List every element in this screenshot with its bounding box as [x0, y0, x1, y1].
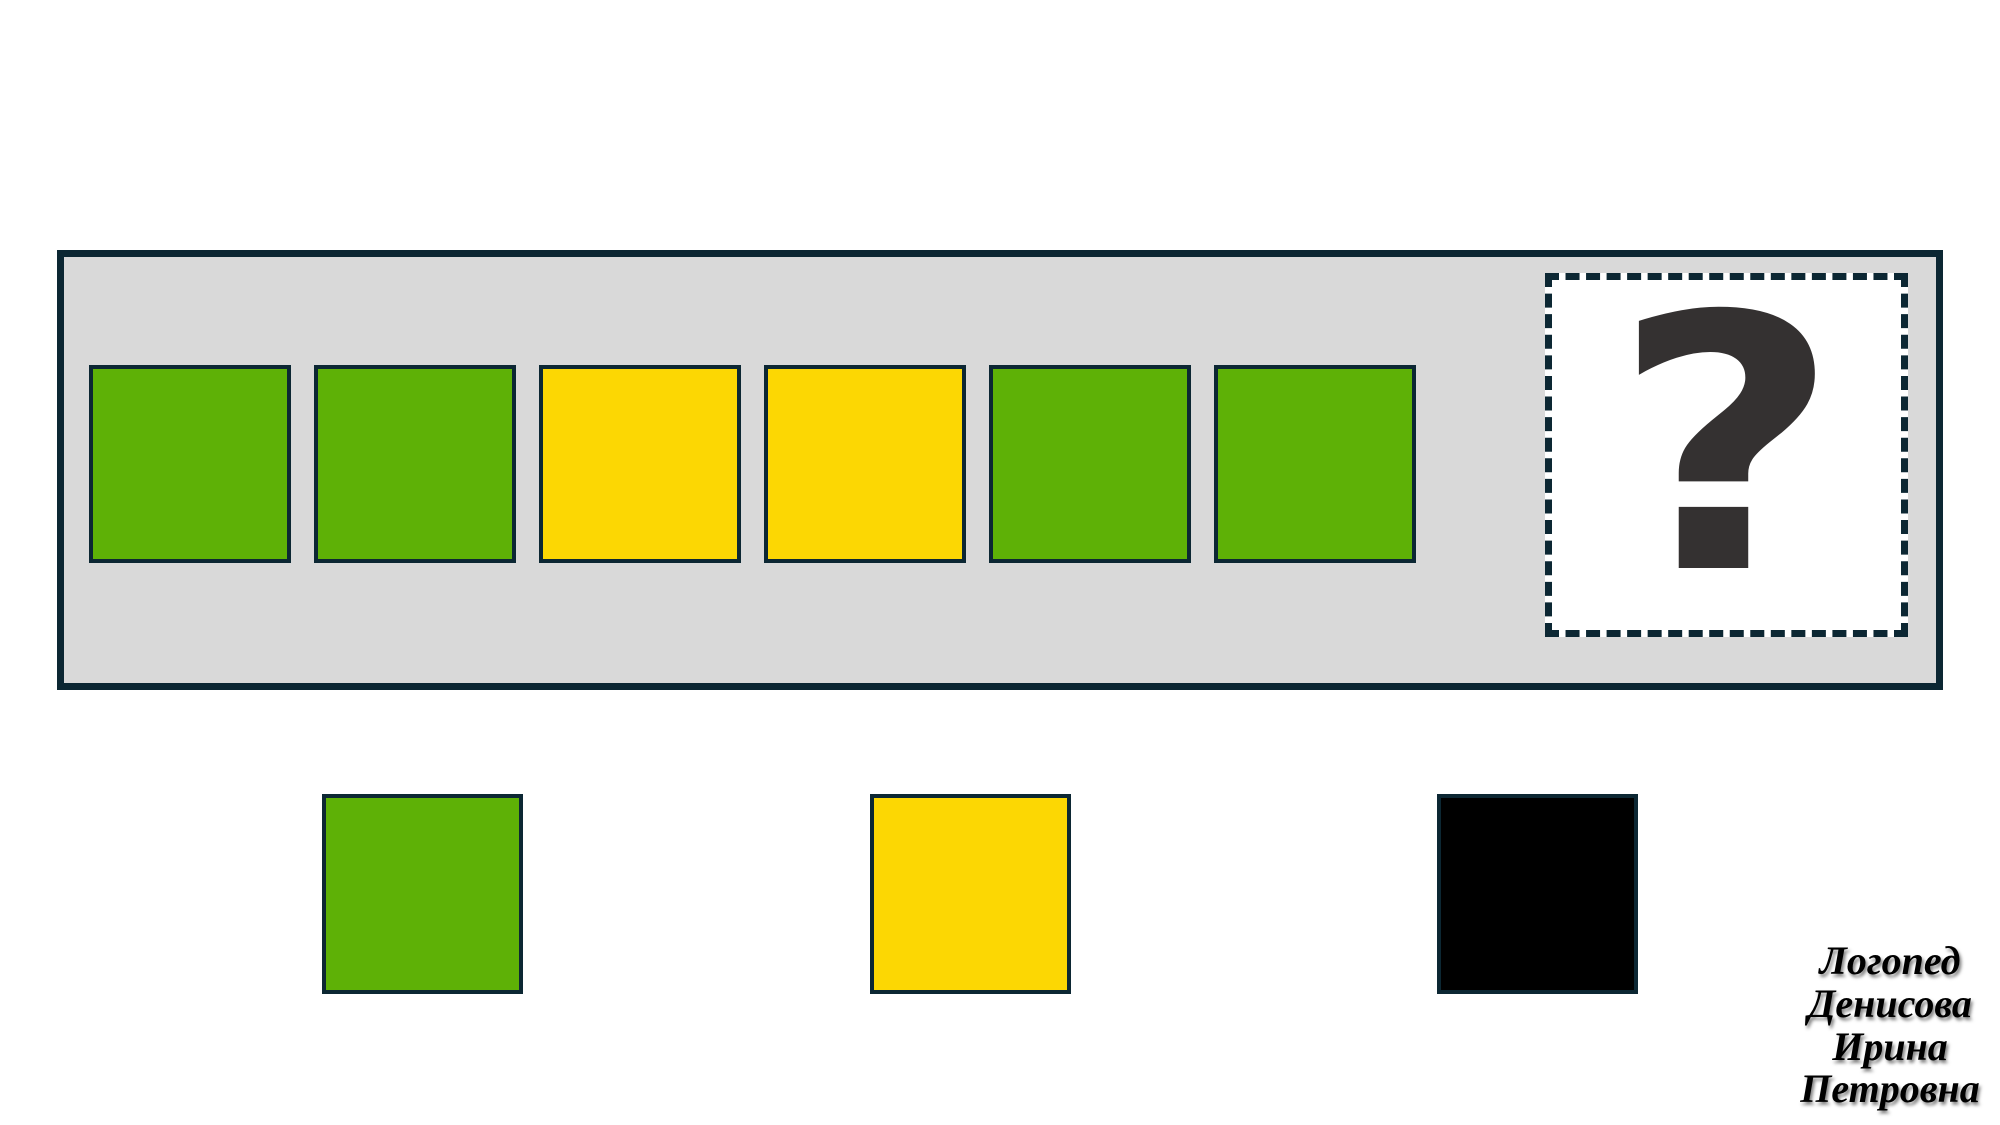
- answer-options: [0, 794, 2000, 996]
- pattern-square-yellow: [539, 365, 741, 563]
- pattern-square-green: [314, 365, 516, 563]
- watermark-line-3: Ирина: [1778, 1026, 2000, 1069]
- pattern-board: ?: [57, 250, 1943, 690]
- pattern-square-yellow: [764, 365, 966, 563]
- answer-slot[interactable]: ?: [1545, 273, 1908, 637]
- watermark-line-2: Денисова: [1778, 983, 2000, 1026]
- worksheet-canvas: ? Логопед Денисова Ирина Петровна: [0, 0, 2000, 1125]
- question-mark: ?: [1612, 271, 1841, 623]
- pattern-square-green: [989, 365, 1191, 563]
- watermark-line-4: Петровна: [1778, 1068, 2000, 1111]
- answer-option-black[interactable]: [1437, 794, 1638, 994]
- pattern-sequence: [89, 365, 1416, 563]
- pattern-square-green: [1214, 365, 1416, 563]
- pattern-square-green: [89, 365, 291, 563]
- answer-option-green[interactable]: [322, 794, 523, 994]
- answer-option-yellow[interactable]: [870, 794, 1071, 994]
- watermark-line-1: Логопед: [1778, 940, 2000, 983]
- watermark: Логопед Денисова Ирина Петровна: [1778, 940, 2000, 1111]
